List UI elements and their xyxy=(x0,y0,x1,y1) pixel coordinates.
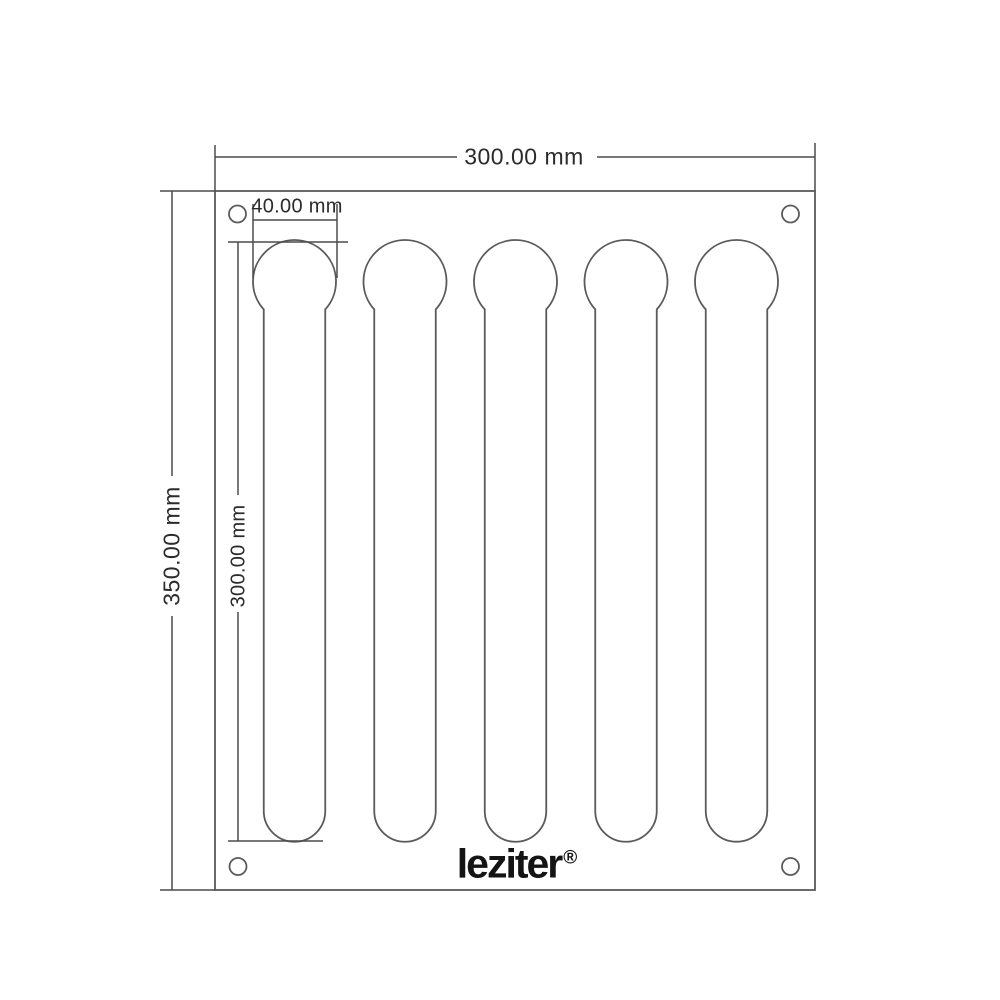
dim-label-slot-length: 300.00 mm xyxy=(228,505,251,608)
keyhole-slots-group xyxy=(253,240,778,842)
keyhole-slot-5 xyxy=(695,240,778,842)
dim-label-overall-width: 300.00 mm xyxy=(464,144,584,171)
keyhole-slot-3 xyxy=(474,240,557,842)
corner-hole-bottom-right xyxy=(782,858,799,875)
corner-hole-bottom-left xyxy=(230,858,247,875)
dim-label-slot-width: 40.00 mm xyxy=(251,196,342,219)
corner-hole-top-right xyxy=(782,206,799,223)
plate-outline xyxy=(215,191,815,890)
technical-drawing-page: 300.00 mm 350.00 mm 300.00 mm 40.00 mm l… xyxy=(0,0,1000,1000)
keyhole-slot-2 xyxy=(364,240,447,842)
dimension-lines-group xyxy=(160,143,815,890)
corner-hole-top-left xyxy=(229,206,246,223)
brand-logo-text: leziter xyxy=(457,841,562,887)
dim-label-overall-height: 350.00 mm xyxy=(159,486,186,606)
brand-logo: leziter® xyxy=(457,841,576,888)
registered-trademark-icon: ® xyxy=(563,848,577,869)
keyhole-slot-1 xyxy=(253,240,336,842)
keyhole-slot-4 xyxy=(585,240,668,842)
plate-outline-group xyxy=(215,191,815,890)
